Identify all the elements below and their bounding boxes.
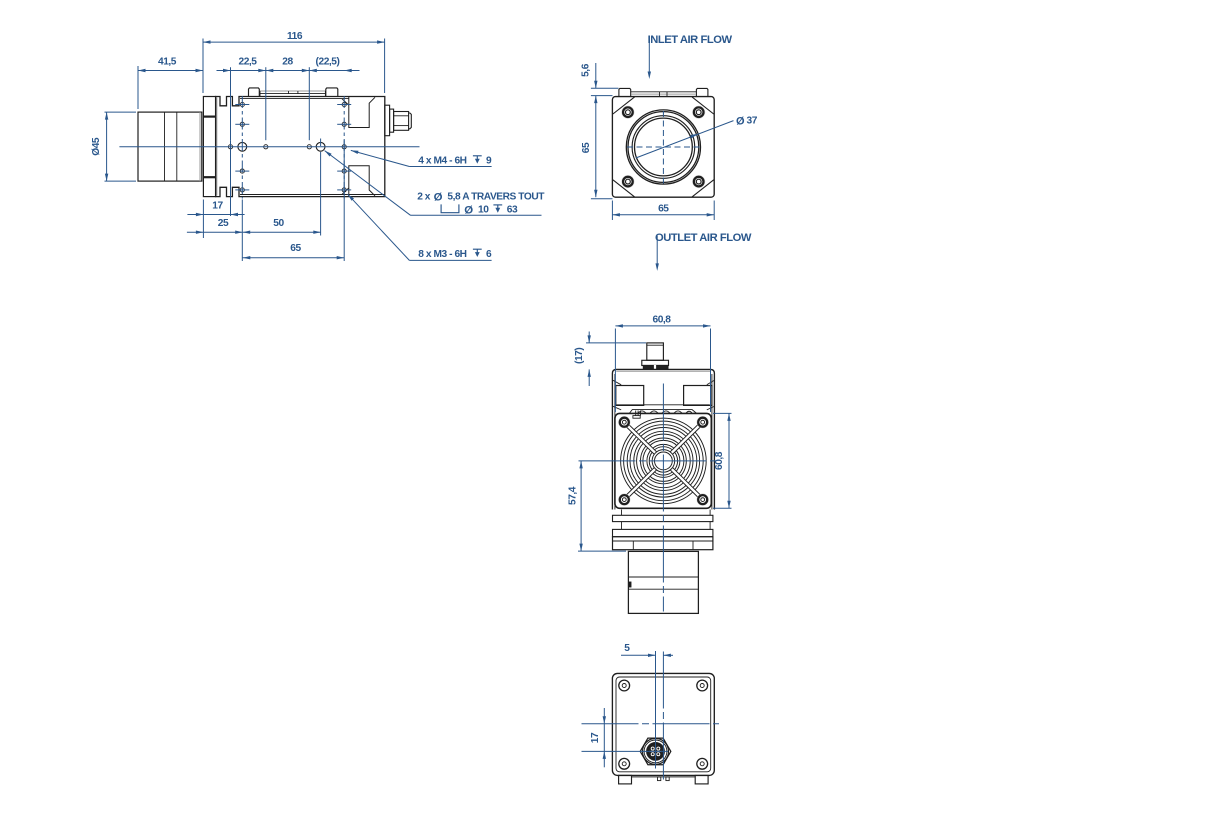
svg-text:Ø: Ø: [464, 205, 473, 217]
svg-text:17: 17: [212, 201, 223, 212]
svg-text:(17): (17): [574, 348, 585, 364]
svg-text:41,5: 41,5: [158, 56, 177, 67]
svg-text:5,8 A TRAVERS TOUT: 5,8 A TRAVERS TOUT: [447, 191, 545, 202]
svg-text:22,5: 22,5: [238, 56, 257, 67]
svg-text:5: 5: [624, 643, 630, 654]
svg-text:50: 50: [273, 218, 284, 229]
svg-text:2 x: 2 x: [417, 191, 431, 202]
svg-text:28: 28: [282, 56, 293, 67]
svg-text:8 x M3 - 6H: 8 x M3 - 6H: [418, 249, 466, 260]
svg-text:65: 65: [581, 142, 592, 153]
svg-text:Ø45: Ø45: [91, 137, 102, 156]
svg-text:9: 9: [486, 156, 492, 167]
svg-text:65: 65: [290, 243, 301, 254]
svg-text:17: 17: [590, 732, 601, 743]
svg-text:OUTLET AIR FLOW: OUTLET AIR FLOW: [655, 232, 752, 244]
svg-text:116: 116: [287, 31, 303, 42]
svg-text:37: 37: [747, 116, 758, 127]
svg-text:5,6: 5,6: [581, 63, 592, 77]
svg-text:65: 65: [658, 204, 669, 215]
svg-text:57,4: 57,4: [568, 486, 579, 505]
svg-text:Ø: Ø: [434, 191, 443, 203]
svg-text:4 x M4 - 6H: 4 x M4 - 6H: [418, 156, 466, 167]
svg-text:10: 10: [478, 205, 489, 216]
svg-text:63: 63: [507, 205, 518, 216]
svg-text:INLET AIR FLOW: INLET AIR FLOW: [648, 34, 733, 46]
svg-text:Ø: Ø: [736, 116, 745, 128]
svg-text:25: 25: [218, 218, 229, 229]
svg-text:(22,5): (22,5): [316, 57, 340, 68]
svg-text:6: 6: [486, 249, 492, 260]
svg-text:60,8: 60,8: [652, 315, 671, 326]
svg-text:60,8: 60,8: [714, 451, 725, 470]
